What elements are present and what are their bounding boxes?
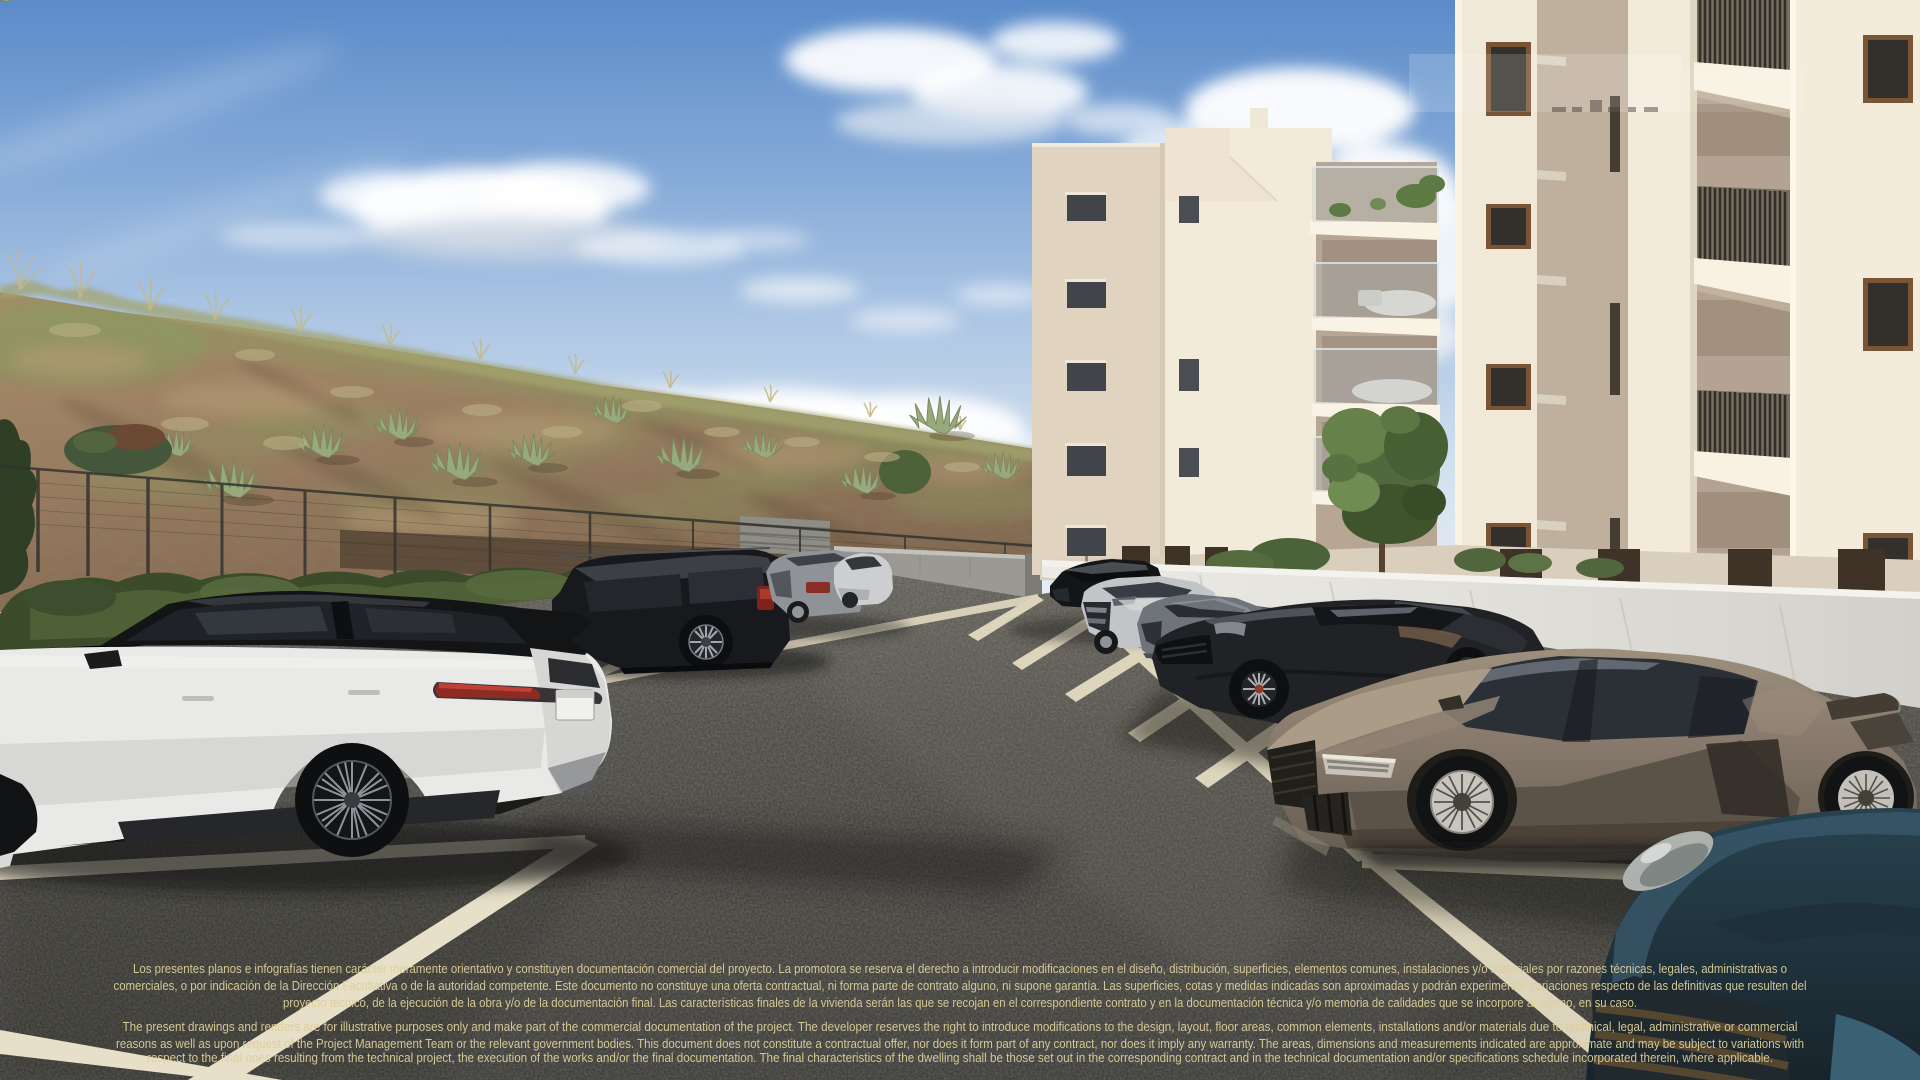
svg-text:The present drawings and rende: The present drawings and renders are for…	[123, 1019, 1798, 1034]
svg-text:Los presentes planos e infogra: Los presentes planos e infografías tiene…	[133, 961, 1787, 976]
svg-text:reasons as well as upon reques: reasons as well as upon request of the P…	[116, 1036, 1804, 1051]
svg-text:proyecto técnico, de la ejecuc: proyecto técnico, de la ejecución de la …	[283, 995, 1637, 1010]
svg-text:comerciales, o por indicación: comerciales, o por indicación de la Dire…	[114, 978, 1807, 993]
svg-text:respect to the final ones resu: respect to the final ones resulting from…	[147, 1050, 1773, 1065]
